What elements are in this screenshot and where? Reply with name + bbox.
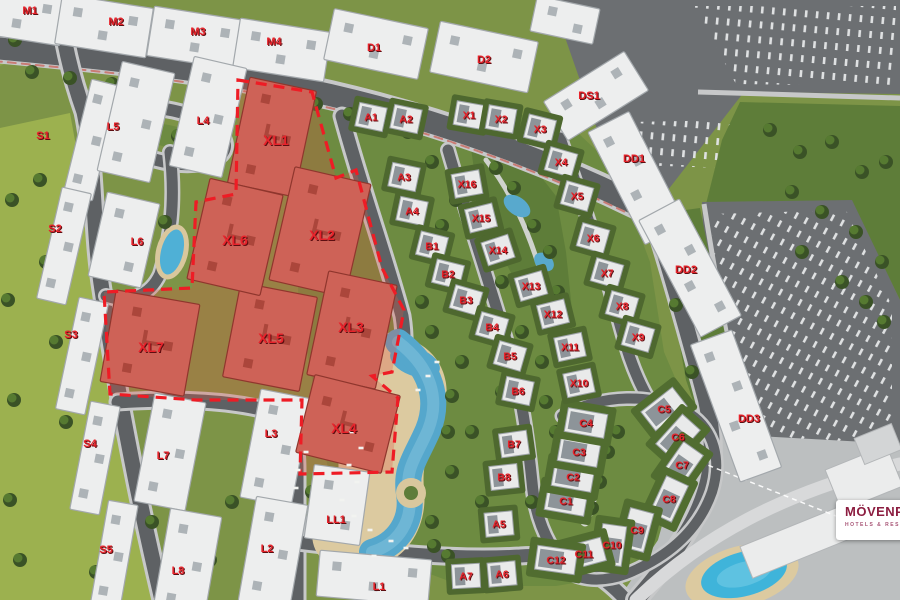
roof-unit: [189, 42, 199, 52]
unit-label-C2: C2: [566, 472, 580, 484]
roof-unit: [78, 488, 89, 499]
tree-highlight: [850, 226, 859, 235]
tree-highlight: [159, 216, 168, 225]
tree: [535, 355, 549, 369]
sun-lounger: [372, 555, 377, 558]
roof-unit: [80, 312, 91, 323]
tree-highlight: [146, 516, 155, 525]
unit-label-D1: D1: [367, 42, 381, 54]
unit-label-M2: M2: [108, 16, 123, 28]
tree: [225, 495, 239, 509]
tree-highlight: [490, 162, 499, 171]
tree: [445, 389, 459, 403]
unit-label-A6: A6: [495, 569, 509, 581]
unit-label-C10: C10: [602, 540, 621, 552]
tree: [515, 325, 529, 339]
sun-lounger: [389, 540, 394, 543]
unit-label-C1: C1: [559, 496, 573, 508]
tree-highlight: [476, 496, 485, 505]
unit-label-X12: X12: [544, 309, 563, 321]
tree-highlight: [816, 206, 825, 215]
tree-highlight: [496, 276, 505, 285]
roof-unit: [92, 416, 103, 427]
unit-label-B4: B4: [485, 322, 499, 334]
roof-unit: [148, 481, 159, 492]
tree-highlight: [508, 182, 517, 191]
unit-label-S2: S2: [48, 223, 61, 235]
tree: [877, 315, 891, 329]
unit-label-B8: B8: [497, 472, 511, 484]
roof-unit: [332, 561, 342, 571]
sun-lounger: [426, 375, 431, 378]
tree-highlight: [2, 294, 11, 303]
unit-label-DD1: DD1: [623, 153, 645, 165]
roof-unit: [165, 19, 175, 29]
unit-label-X10: X10: [570, 378, 589, 390]
tree-highlight: [686, 366, 695, 375]
tree: [785, 185, 799, 199]
roof-unit: [449, 35, 460, 46]
roof-unit: [324, 480, 334, 490]
unit-label-X16: X16: [458, 179, 477, 191]
unit-label-B2: B2: [441, 269, 455, 281]
unit-label-X2: X2: [495, 114, 508, 126]
roof-unit: [340, 287, 351, 298]
sun-lounger: [359, 447, 364, 450]
tree: [425, 325, 439, 339]
unit-label-S4: S4: [83, 438, 97, 450]
unit-label-C6: C6: [671, 432, 685, 444]
unit-label-A2: A2: [399, 114, 413, 126]
roof-unit: [113, 552, 123, 562]
unit-label-L5: L5: [107, 121, 120, 133]
unit-label-DD3: DD3: [738, 413, 760, 425]
tree: [815, 205, 829, 219]
unit-label-XL7[interactable]: XL7: [138, 339, 164, 355]
tree: [425, 155, 439, 169]
unit-label-L6: L6: [131, 236, 144, 248]
unit-label-A1: A1: [364, 112, 378, 124]
unit-label-C5: C5: [657, 404, 671, 416]
unit-label-XL6[interactable]: XL6: [222, 232, 248, 248]
tree: [849, 225, 863, 239]
tree: [489, 161, 503, 175]
unit-label-L2: L2: [261, 543, 274, 555]
unit-label-B5: B5: [503, 351, 517, 363]
roof-unit: [94, 454, 105, 465]
roof-unit: [275, 54, 285, 64]
unit-label-C9: C9: [630, 525, 644, 537]
tree: [825, 135, 839, 149]
tree-highlight: [426, 516, 435, 525]
tree: [5, 193, 19, 207]
tree-highlight: [526, 496, 535, 505]
roof-unit: [11, 18, 21, 28]
tree-highlight: [796, 246, 805, 255]
unit-label-M3: M3: [190, 26, 205, 38]
unit-label-C8: C8: [662, 494, 676, 506]
tree: [507, 181, 521, 195]
unit-label-X5: X5: [571, 191, 584, 203]
roof-unit: [243, 358, 254, 369]
unit-label-C11: C11: [575, 549, 594, 561]
roof-unit: [122, 363, 132, 373]
roof-unit: [547, 6, 558, 17]
unit-label-A4: A4: [405, 206, 419, 218]
masterplan-svg: M1M1M2M2M3M3M4M4D1D1D2D2DS1DS1DD1DD1DD2D…: [0, 0, 900, 600]
unit-label-X4: X4: [555, 157, 568, 169]
unit-label-B7: B7: [507, 439, 521, 451]
roof-unit: [111, 515, 121, 525]
tree: [543, 245, 557, 259]
tree: [415, 295, 429, 309]
sun-lounger: [368, 529, 373, 532]
unit-label-C7: C7: [675, 460, 689, 472]
tree: [25, 65, 39, 79]
roof-unit: [264, 512, 274, 522]
movenpick-logo: MÖVENPICK HOTELS & RESORTS: [836, 500, 900, 540]
tree: [855, 165, 869, 179]
tree-highlight: [26, 66, 35, 75]
unit-label-X1: X1: [463, 110, 476, 122]
unit-label-X8: X8: [616, 301, 629, 313]
roof-unit: [254, 299, 265, 310]
sun-lounger: [347, 464, 352, 467]
tree-highlight: [456, 356, 465, 365]
tree-highlight: [536, 356, 545, 365]
sun-lounger: [416, 389, 421, 392]
tree-highlight: [34, 174, 43, 183]
tree-highlight: [8, 394, 17, 403]
unit-label-S1: S1: [36, 130, 49, 142]
tree-highlight: [442, 550, 451, 559]
tree-highlight: [6, 194, 15, 203]
tree: [441, 425, 455, 439]
tree-highlight: [786, 186, 795, 195]
unit-label-L7: L7: [157, 450, 170, 462]
sun-lounger: [352, 515, 357, 518]
tree: [859, 295, 873, 309]
roof-unit: [178, 524, 188, 534]
masterplan-map: M1M1M2M2M3M3M4M4D1D1D2D2DS1DS1DD1DD1DD2D…: [0, 0, 900, 600]
unit-label-DS1: DS1: [578, 90, 599, 102]
roof-unit: [128, 16, 138, 26]
unit-label-L3: L3: [265, 428, 278, 440]
tree: [495, 275, 509, 289]
roof-unit: [162, 408, 173, 419]
roof-unit: [281, 445, 292, 456]
unit-label-M1: M1: [22, 5, 37, 17]
unit-label-B3: B3: [459, 295, 473, 307]
roof-unit: [97, 30, 107, 40]
roof-unit: [408, 568, 418, 578]
tree-highlight: [60, 416, 69, 425]
tree-highlight: [436, 220, 445, 229]
unit-label-A3: A3: [397, 172, 411, 184]
sun-lounger: [355, 481, 360, 484]
tree: [7, 393, 21, 407]
unit-label-XL4[interactable]: XL4: [331, 420, 357, 436]
roof-unit: [251, 31, 261, 41]
roof-unit: [325, 356, 336, 367]
unit-label-X14: X14: [489, 245, 508, 257]
roof-unit: [252, 581, 262, 591]
roof-unit: [268, 404, 279, 415]
sun-lounger: [340, 499, 345, 502]
roof-unit: [220, 28, 230, 38]
unit-label-XL5[interactable]: XL5: [258, 330, 284, 346]
unit-label-X11: X11: [561, 342, 579, 354]
tree: [527, 219, 541, 233]
unit-label-XL3[interactable]: XL3: [338, 319, 364, 335]
tree-highlight: [416, 296, 425, 305]
sun-lounger: [296, 469, 301, 472]
tree: [835, 275, 849, 289]
tree-highlight: [426, 156, 435, 165]
building-LL1: [304, 464, 370, 545]
roof-unit: [175, 449, 186, 460]
tree-highlight: [764, 124, 773, 133]
sun-lounger: [435, 361, 440, 364]
unit-label-LL1: LL1: [326, 514, 346, 526]
tree: [795, 245, 809, 259]
tree-highlight: [446, 466, 455, 475]
roof-unit: [343, 23, 354, 34]
tree-highlight: [50, 336, 59, 345]
tree: [158, 215, 172, 229]
tree-highlight: [860, 296, 869, 305]
tree: [1, 293, 15, 307]
unit-label-M4: M4: [266, 36, 282, 48]
tree: [465, 425, 479, 439]
movenpick-logo-name: MÖVENPICK: [845, 505, 900, 519]
unit-label-S3: S3: [64, 329, 77, 341]
tree-highlight: [544, 246, 553, 255]
roof-unit: [192, 562, 202, 572]
unit-label-L8: L8: [172, 565, 185, 577]
roof-unit: [572, 23, 583, 34]
lagoon-island-green: [404, 486, 418, 500]
tree: [539, 395, 553, 409]
unit-label-L1: L1: [373, 581, 386, 593]
unit-label-B1: B1: [425, 241, 439, 253]
sun-lounger: [294, 487, 299, 490]
roof-unit: [81, 352, 92, 363]
tree-highlight: [446, 390, 455, 399]
unit-label-XL2[interactable]: XL2: [309, 227, 335, 243]
tree-highlight: [794, 146, 803, 155]
tree: [475, 495, 489, 509]
unit-label-X15: X15: [472, 213, 491, 225]
tree: [763, 123, 777, 137]
unit-label-C4: C4: [579, 418, 593, 430]
roof-unit: [260, 94, 271, 105]
tree: [13, 553, 27, 567]
tree-highlight: [428, 540, 437, 549]
movenpick-logo-tagline: HOTELS & RESORTS: [845, 522, 900, 528]
tree-highlight: [856, 166, 865, 175]
unit-label-X6: X6: [587, 233, 600, 245]
roof-unit: [512, 49, 523, 60]
unit-label-X13: X13: [522, 281, 541, 293]
unit-label-X3: X3: [534, 124, 547, 136]
tree-highlight: [670, 299, 679, 308]
tree-highlight: [876, 256, 885, 265]
tree-highlight: [528, 220, 537, 229]
tree: [445, 465, 459, 479]
tree-highlight: [516, 326, 525, 335]
roof-unit: [254, 477, 265, 488]
roof-unit: [306, 40, 316, 50]
unit-label-X9: X9: [632, 332, 645, 344]
tree: [49, 335, 63, 349]
unit-label-A5: A5: [492, 519, 506, 531]
unit-label-DD2: DD2: [675, 264, 697, 276]
unit-label-A7: A7: [459, 571, 473, 583]
tree: [425, 515, 439, 529]
roof-unit: [98, 585, 108, 595]
tree-highlight: [226, 496, 235, 505]
tree: [33, 173, 47, 187]
tree: [793, 145, 807, 159]
unit-label-B6: B6: [511, 386, 525, 398]
sun-lounger: [404, 547, 409, 550]
unit-label-S5: S5: [99, 544, 112, 556]
tree-highlight: [4, 494, 13, 503]
unit-label-C12: C12: [546, 555, 565, 567]
tree: [879, 155, 893, 169]
tree-highlight: [442, 426, 451, 435]
tree-highlight: [826, 136, 835, 145]
tree: [3, 493, 17, 507]
roof-unit: [402, 35, 413, 46]
unit-label-XL1[interactable]: XL1: [263, 132, 289, 148]
tree: [875, 255, 889, 269]
roof-unit: [42, 4, 52, 14]
roof-unit: [73, 7, 83, 17]
sun-lounger: [304, 451, 309, 454]
tree: [59, 415, 73, 429]
tree: [427, 539, 441, 553]
tree-highlight: [64, 72, 73, 81]
tree-highlight: [14, 554, 23, 563]
tree-highlight: [426, 326, 435, 335]
tree-highlight: [540, 396, 549, 405]
unit-label-L4: L4: [197, 115, 211, 127]
building-roof-LL1: [304, 464, 370, 545]
tree: [63, 71, 77, 85]
tree-highlight: [836, 276, 845, 285]
roof-unit: [132, 307, 142, 317]
tree: [685, 365, 699, 379]
unit-label-X7: X7: [601, 268, 614, 280]
tree: [145, 515, 159, 529]
roof-unit: [245, 164, 256, 175]
roof-unit: [64, 388, 75, 399]
unit-label-D2: D2: [477, 54, 491, 66]
unit-label-C3: C3: [572, 447, 586, 459]
tree-highlight: [466, 426, 475, 435]
tree-highlight: [878, 316, 887, 325]
tree-highlight: [880, 156, 889, 165]
tree: [455, 355, 469, 369]
roof-unit: [278, 550, 288, 560]
